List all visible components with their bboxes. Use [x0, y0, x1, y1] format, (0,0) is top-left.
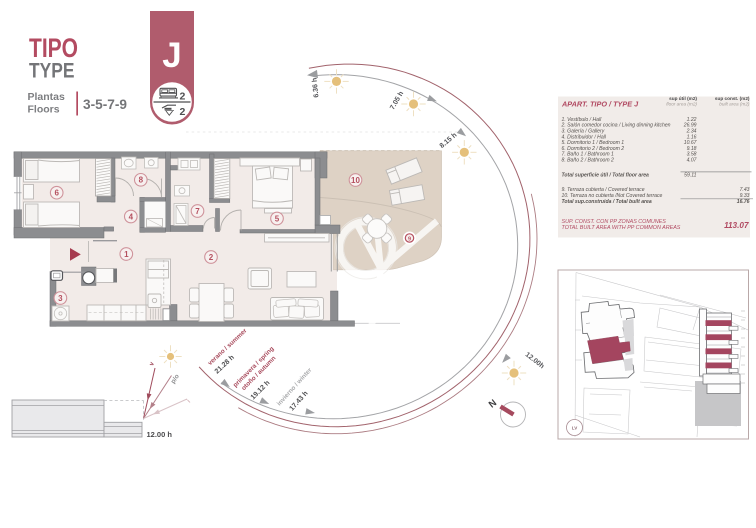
svg-text:12.00 h: 12.00 h: [147, 430, 173, 439]
svg-text:3: 3: [58, 294, 63, 303]
svg-text:6: 6: [54, 189, 59, 198]
svg-text:SUP. CONST. CON PP ZONAS COMUN: SUP. CONST. CON PP ZONAS COMUNES: [562, 219, 667, 225]
svg-text:1: 1: [124, 250, 129, 259]
svg-text:8. Baño 2 / Bathroom 2: 8. Baño 2 / Bathroom 2: [562, 158, 615, 164]
svg-text:2: 2: [209, 253, 214, 262]
svg-text:N: N: [487, 398, 499, 411]
svg-text:5: 5: [275, 214, 280, 223]
svg-text:p/o: p/o: [170, 373, 181, 385]
svg-text:4.07: 4.07: [687, 158, 697, 164]
svg-text:2: 2: [180, 106, 186, 118]
svg-text:8: 8: [139, 176, 144, 185]
svg-text:TOTAL BUILT AREA WITH PP COMMO: TOTAL BUILT AREA WITH PP COMMON AREAS: [562, 225, 681, 231]
svg-text:6.36 h: 6.36 h: [311, 77, 320, 97]
svg-text:Total sup.construida / Total b: Total sup.construida / Total built area: [562, 199, 652, 205]
svg-text:10: 10: [351, 176, 360, 185]
svg-text:16.76: 16.76: [737, 199, 750, 205]
svg-text:Plantas: Plantas: [28, 91, 66, 103]
svg-text:8.15 h: 8.15 h: [439, 132, 459, 150]
svg-text:Total superficie útil / Total: Total superficie útil / Total floor area: [562, 172, 650, 178]
svg-text:APART. TIPO / TYPE J: APART. TIPO / TYPE J: [561, 99, 639, 108]
svg-text:12.00h: 12.00h: [524, 351, 545, 370]
svg-text:built area (m2): built area (m2): [719, 102, 750, 107]
svg-text:sup útil (m2): sup útil (m2): [669, 96, 697, 101]
svg-text:sup const. (m2): sup const. (m2): [715, 96, 750, 101]
svg-text:floor area (m2): floor area (m2): [666, 102, 697, 107]
svg-text:J: J: [162, 36, 181, 75]
svg-text:7: 7: [195, 207, 200, 216]
svg-text:Floors: Floors: [28, 104, 60, 116]
svg-text:9: 9: [408, 236, 411, 242]
svg-text:i: i: [186, 398, 192, 404]
svg-text:TYPE: TYPE: [29, 59, 75, 83]
svg-text:7.05 h: 7.05 h: [389, 90, 405, 111]
svg-text:59.11: 59.11: [684, 172, 697, 178]
svg-text:2: 2: [180, 91, 186, 103]
svg-text:3-5-7-9: 3-5-7-9: [83, 96, 127, 112]
svg-text:4: 4: [129, 212, 134, 221]
svg-text:LV: LV: [572, 426, 577, 431]
svg-text:v: v: [148, 361, 156, 367]
svg-text:113.07: 113.07: [724, 221, 749, 230]
